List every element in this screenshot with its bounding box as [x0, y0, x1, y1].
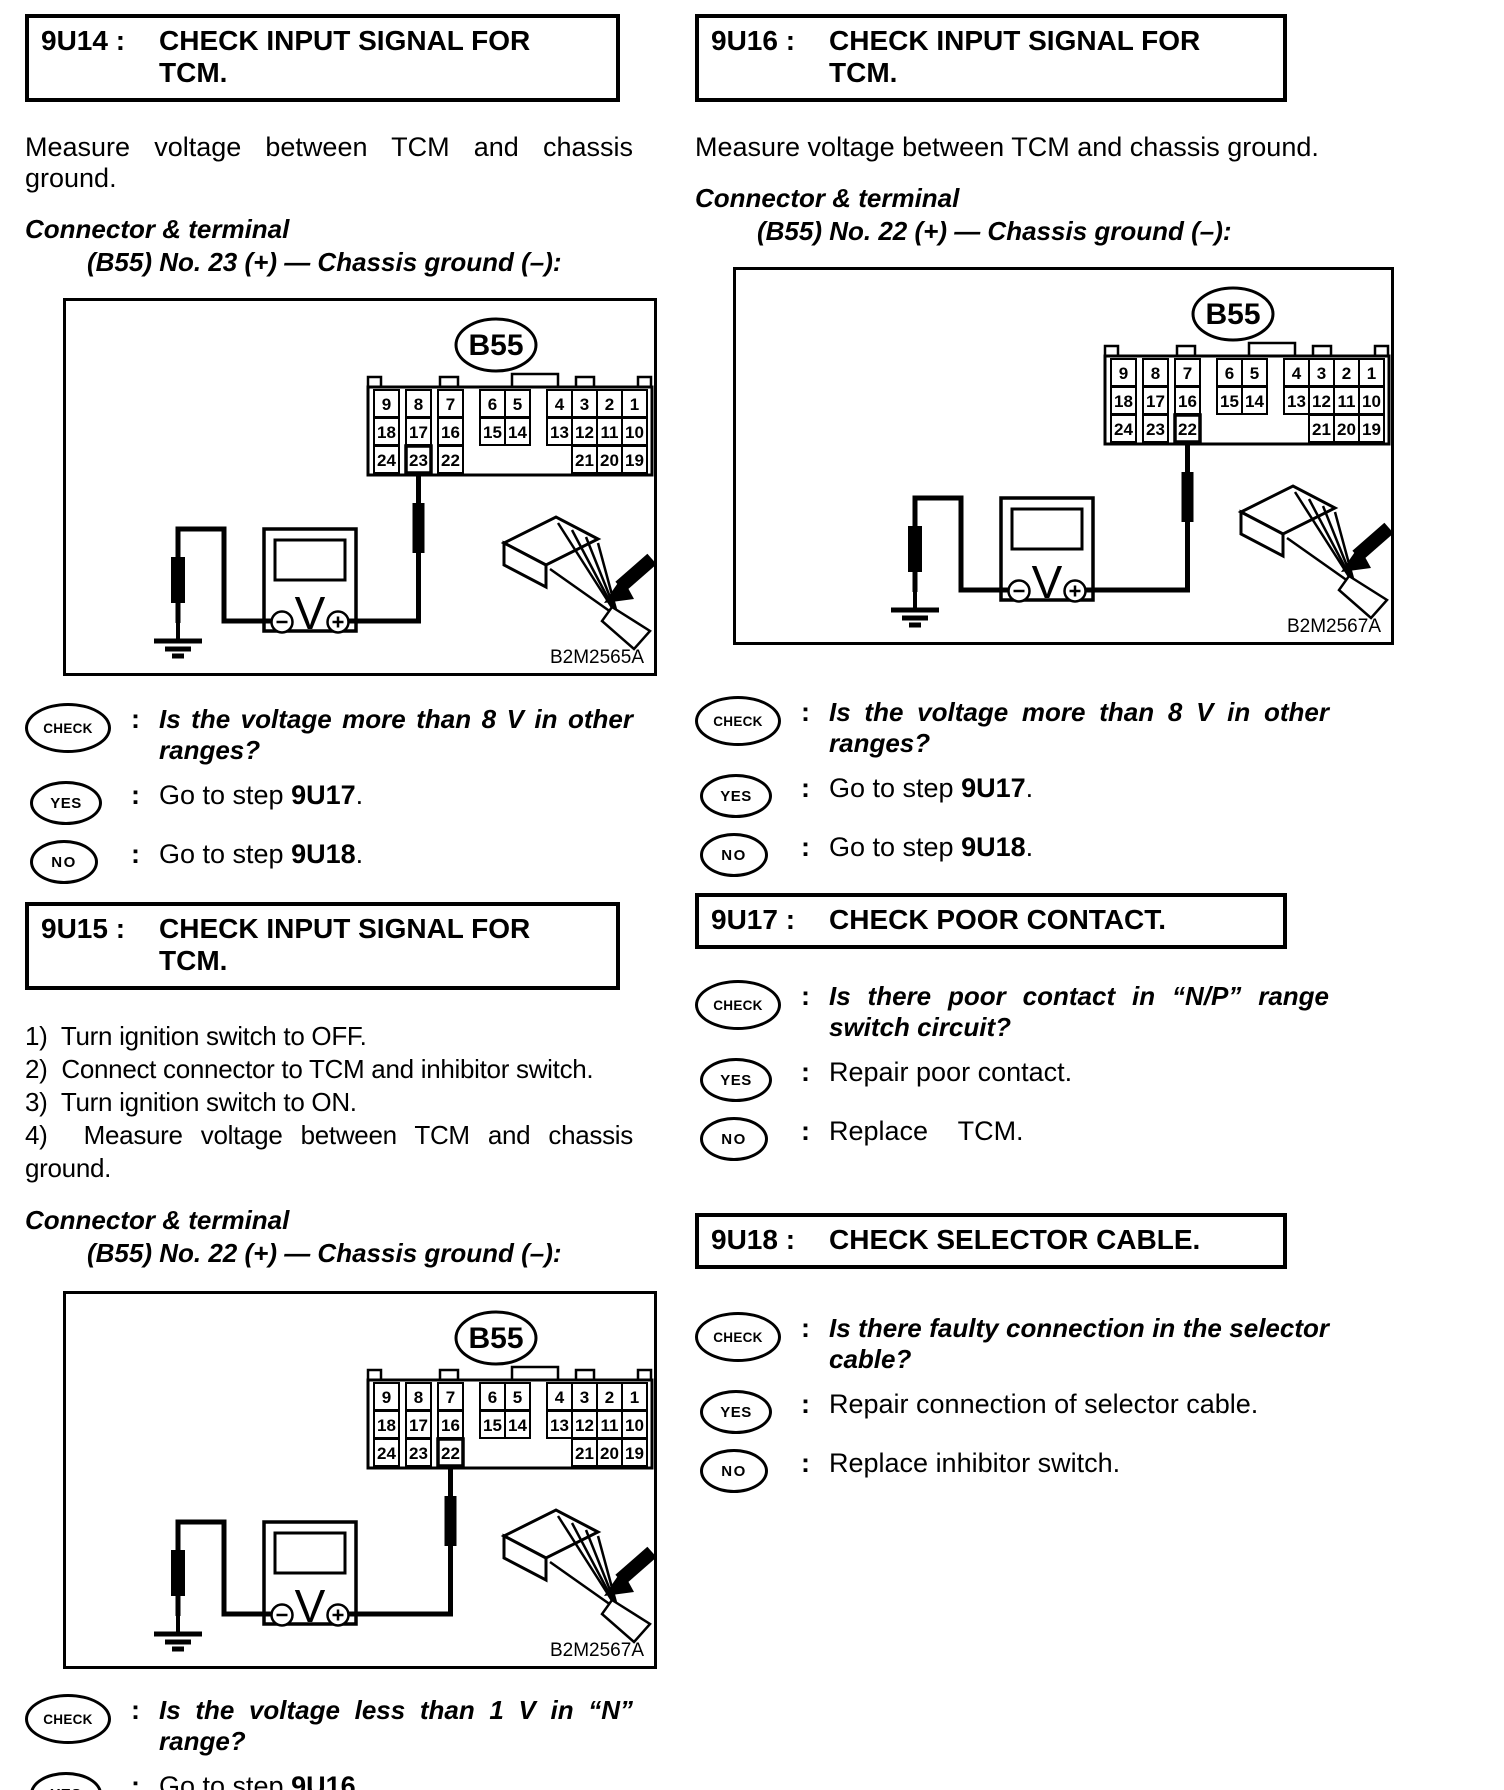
svg-text:21: 21 — [575, 451, 594, 470]
step-9u15-procedure: 1) Turn ignition switch to OFF.2) Connec… — [25, 1020, 633, 1185]
colon-separator: : — [801, 832, 829, 863]
figure-caption: B2M2567A — [550, 1640, 644, 1661]
badge-column: CHECK — [695, 979, 801, 1030]
svg-text:13: 13 — [1287, 392, 1306, 411]
step-id: 9U14 : — [41, 25, 159, 57]
left-column: 9U14 : CHECK INPUT SIGNAL FOR TCM. Measu… — [25, 0, 633, 1790]
arrow-icon — [604, 1552, 652, 1596]
figure-caption: B2M2567A — [1287, 616, 1381, 637]
svg-text:20: 20 — [600, 451, 619, 470]
connector-terminal-spec: (B55) No. 22 (+) — Chassis ground (–): — [87, 1238, 633, 1269]
yes-row: YES:Go to step 9U17. — [25, 778, 633, 825]
yes-row: YES:Go to step 9U16. — [25, 1769, 633, 1790]
badge-column: YES — [695, 771, 801, 818]
no-text: Replace inhibitor switch. — [829, 1448, 1120, 1479]
svg-text:19: 19 — [625, 1444, 644, 1463]
svg-text:2: 2 — [605, 395, 614, 414]
yes-badge: YES — [30, 781, 102, 825]
svg-text:3: 3 — [580, 1388, 589, 1407]
svg-text:B55: B55 — [468, 329, 523, 362]
connector-terminal-heading: Connector & terminal — [25, 1205, 633, 1236]
qa-9u14: CHECK:Is the voltage more than 8 V in ot… — [25, 702, 633, 884]
yes-text: Repair connection of selector cable. — [829, 1389, 1258, 1420]
step-9u14-header: 9U14 : CHECK INPUT SIGNAL FOR TCM. — [25, 14, 620, 102]
arrow-icon — [1341, 528, 1389, 572]
svg-text:15: 15 — [483, 423, 502, 442]
step-id: 9U16 : — [711, 25, 829, 57]
colon-separator: : — [801, 1313, 829, 1344]
svg-text:B55: B55 — [1205, 298, 1260, 331]
check-badge: CHECK — [695, 980, 781, 1030]
no-badge: NO — [30, 840, 98, 884]
svg-text:V: V — [295, 587, 326, 639]
figure-9u16: B559182481723716226155144133122121120110… — [733, 267, 1394, 645]
yes-badge: YES — [30, 1772, 102, 1790]
svg-text:13: 13 — [550, 423, 569, 442]
svg-text:V: V — [295, 1580, 326, 1632]
colon-separator: : — [801, 773, 829, 804]
svg-text:19: 19 — [1362, 420, 1381, 439]
step-9u18-header: 9U18 : CHECK SELECTOR CABLE. — [695, 1213, 1287, 1269]
badge-column: YES — [25, 778, 131, 825]
svg-text:5: 5 — [513, 395, 522, 414]
colon-separator: : — [131, 1771, 159, 1790]
svg-text:15: 15 — [1220, 392, 1239, 411]
step-9u14-intro: Measure voltage between TCM and chassis … — [25, 132, 633, 194]
badge-column: CHECK — [25, 702, 131, 753]
svg-text:10: 10 — [625, 423, 644, 442]
svg-text:21: 21 — [575, 1444, 594, 1463]
colon-separator: : — [801, 981, 829, 1012]
svg-text:15: 15 — [483, 1416, 502, 1435]
svg-text:21: 21 — [1312, 420, 1331, 439]
svg-text:11: 11 — [1338, 392, 1356, 411]
check-text: Is there faulty connection in the select… — [829, 1313, 1329, 1375]
step-title: CHECK SELECTOR CABLE. — [829, 1224, 1200, 1256]
svg-text:12: 12 — [575, 1416, 594, 1435]
badge-column: CHECK — [695, 695, 801, 746]
check-text: Is the voltage more than 8 V in other ra… — [829, 697, 1329, 759]
step-id: 9U15 : — [41, 913, 159, 945]
colon-separator: : — [801, 1448, 829, 1479]
badge-column: YES — [25, 1769, 131, 1790]
no-text: Go to step 9U18. — [159, 839, 363, 870]
step-title: CHECK INPUT SIGNAL FOR TCM. — [159, 913, 606, 977]
svg-text:18: 18 — [377, 423, 396, 442]
svg-text:5: 5 — [513, 1388, 522, 1407]
figure-9u14: B559182481723716226155144133122121120110… — [63, 298, 657, 676]
badge-column: NO — [695, 830, 801, 877]
yes-text: Go to step 9U17. — [829, 773, 1033, 804]
connector-pin-diagram: 918248172371622615514413312212112011019 — [1105, 343, 1389, 444]
svg-text:8: 8 — [1151, 364, 1160, 383]
connector-terminal-spec: (B55) No. 23 (+) — Chassis ground (–): — [87, 247, 633, 278]
badge-column: YES — [695, 1387, 801, 1434]
step-9u17-header: 9U17 : CHECK POOR CONTACT. — [695, 893, 1287, 949]
svg-text:8: 8 — [414, 395, 423, 414]
step-9u16-header: 9U16 : CHECK INPUT SIGNAL FOR TCM. — [695, 14, 1287, 102]
connector-pin-diagram: 918248172371622615514413312212112011019 — [368, 374, 652, 475]
check-badge: CHECK — [25, 1694, 111, 1744]
badge-column: YES — [695, 1055, 801, 1102]
colon-separator: : — [131, 780, 159, 811]
svg-text:10: 10 — [1362, 392, 1381, 411]
check-row: CHECK:Is there poor contact in “N/P” ran… — [695, 979, 1410, 1043]
no-row: NO:Replace TCM. — [695, 1114, 1410, 1161]
colon-separator: : — [801, 1389, 829, 1420]
yes-row: YES:Repair poor contact. — [695, 1055, 1410, 1102]
ground-icon — [154, 1616, 202, 1649]
check-text: Is the voltage more than 8 V in other ra… — [159, 704, 633, 766]
svg-text:10: 10 — [625, 1416, 644, 1435]
badge-column: CHECK — [695, 1311, 801, 1362]
svg-text:3: 3 — [1317, 364, 1326, 383]
yes-row: YES:Go to step 9U17. — [695, 771, 1410, 818]
svg-text:23: 23 — [409, 1444, 428, 1463]
qa-9u15: CHECK:Is the voltage less than 1 V in “N… — [25, 1693, 633, 1790]
svg-text:14: 14 — [1245, 392, 1264, 411]
svg-text:4: 4 — [1292, 364, 1302, 383]
svg-text:4: 4 — [555, 395, 565, 414]
ground-icon — [891, 592, 939, 625]
connector-id-label: B55 — [456, 1312, 536, 1364]
svg-text:22: 22 — [1178, 420, 1197, 439]
svg-text:2: 2 — [605, 1388, 614, 1407]
test-lead-wire — [1083, 442, 1194, 590]
yes-badge: YES — [700, 1390, 772, 1434]
svg-text:5: 5 — [1250, 364, 1259, 383]
check-row: CHECK:Is the voltage more than 8 V in ot… — [25, 702, 633, 766]
no-badge: NO — [700, 1449, 768, 1493]
yes-badge: YES — [700, 774, 772, 818]
svg-text:4: 4 — [555, 1388, 565, 1407]
step-title: CHECK POOR CONTACT. — [829, 904, 1166, 936]
svg-text:7: 7 — [1183, 364, 1192, 383]
procedure-step: 3) Turn ignition switch to ON. — [25, 1086, 633, 1119]
svg-text:19: 19 — [625, 451, 644, 470]
colon-separator: : — [801, 1057, 829, 1088]
svg-text:18: 18 — [1114, 392, 1133, 411]
connector-terminal-spec: (B55) No. 22 (+) — Chassis ground (–): — [757, 216, 1410, 247]
svg-text:17: 17 — [1146, 392, 1165, 411]
qa-9u16: CHECK:Is the voltage more than 8 V in ot… — [695, 695, 1410, 877]
no-text: Replace TCM. — [829, 1116, 1024, 1147]
svg-text:20: 20 — [600, 1444, 619, 1463]
svg-text:7: 7 — [446, 1388, 455, 1407]
step-id: 9U17 : — [711, 904, 829, 936]
connector-terminal-heading: Connector & terminal — [695, 183, 1410, 214]
qa-9u18: CHECK:Is there faulty connection in the … — [695, 1311, 1410, 1493]
svg-text:6: 6 — [1225, 364, 1234, 383]
svg-text:6: 6 — [488, 1388, 497, 1407]
figure-canvas: B559182481723716226155144133122121120110… — [66, 301, 654, 673]
yes-text: Go to step 9U17. — [159, 780, 363, 811]
check-text: Is the voltage less than 1 V in “N” rang… — [159, 1695, 633, 1757]
svg-text:12: 12 — [1312, 392, 1331, 411]
svg-text:9: 9 — [382, 395, 391, 414]
check-badge: CHECK — [695, 1312, 781, 1362]
test-lead-wire — [346, 473, 425, 621]
svg-text:8: 8 — [414, 1388, 423, 1407]
svg-text:22: 22 — [441, 451, 460, 470]
yes-text: Go to step 9U16. — [159, 1771, 363, 1790]
svg-text:16: 16 — [441, 423, 460, 442]
figure-caption: B2M2565A — [550, 647, 644, 668]
svg-text:14: 14 — [508, 423, 527, 442]
svg-text:22: 22 — [441, 1444, 460, 1463]
procedure-step: 2) Connect connector to TCM and inhibito… — [25, 1053, 633, 1086]
step-9u16-intro: Measure voltage between TCM and chassis … — [695, 132, 1410, 163]
svg-text:17: 17 — [409, 1416, 428, 1435]
figure-9u15: B559182481723716226155144133122121120110… — [63, 1291, 657, 1669]
no-row: NO:Go to step 9U18. — [695, 830, 1410, 877]
procedure-step: 4) Measure voltage between TCM and chass… — [25, 1119, 633, 1185]
svg-text:2: 2 — [1342, 364, 1351, 383]
svg-text:24: 24 — [377, 1444, 396, 1463]
svg-text:24: 24 — [1114, 420, 1133, 439]
figure-canvas: B559182481723716226155144133122121120110… — [736, 270, 1391, 642]
connector-id-label: B55 — [456, 319, 536, 371]
svg-text:3: 3 — [580, 395, 589, 414]
no-row: NO:Replace inhibitor switch. — [695, 1446, 1410, 1493]
colon-separator: : — [131, 839, 159, 870]
figure-canvas: B559182481723716226155144133122121120110… — [66, 1294, 654, 1666]
check-row: CHECK:Is the voltage less than 1 V in “N… — [25, 1693, 633, 1757]
svg-text:24: 24 — [377, 451, 396, 470]
qa-9u17: CHECK:Is there poor contact in “N/P” ran… — [695, 979, 1410, 1161]
check-badge: CHECK — [25, 703, 111, 753]
colon-separator: : — [801, 697, 829, 728]
svg-text:1: 1 — [1367, 364, 1376, 383]
svg-text:7: 7 — [446, 395, 455, 414]
yes-text: Repair poor contact. — [829, 1057, 1072, 1088]
svg-text:13: 13 — [550, 1416, 569, 1435]
right-column: 9U16 : CHECK INPUT SIGNAL FOR TCM. Measu… — [695, 0, 1410, 1505]
colon-separator: : — [131, 704, 159, 735]
check-row: CHECK:Is the voltage more than 8 V in ot… — [695, 695, 1410, 759]
badge-column: NO — [695, 1114, 801, 1161]
step-title: CHECK INPUT SIGNAL FOR TCM. — [829, 25, 1273, 89]
check-badge: CHECK — [695, 696, 781, 746]
svg-text:1: 1 — [630, 1388, 639, 1407]
colon-separator: : — [801, 1116, 829, 1147]
ground-lead — [171, 1522, 274, 1616]
step-title: CHECK INPUT SIGNAL FOR TCM. — [159, 25, 606, 89]
svg-text:B55: B55 — [468, 1322, 523, 1355]
svg-text:18: 18 — [377, 1416, 396, 1435]
svg-text:V: V — [1032, 556, 1063, 608]
connector-id-label: B55 — [1193, 288, 1273, 340]
svg-text:16: 16 — [441, 1416, 460, 1435]
svg-text:1: 1 — [630, 395, 639, 414]
svg-text:20: 20 — [1337, 420, 1356, 439]
colon-separator: : — [131, 1695, 159, 1726]
no-badge: NO — [700, 833, 768, 877]
svg-text:9: 9 — [382, 1388, 391, 1407]
step-9u15-header: 9U15 : CHECK INPUT SIGNAL FOR TCM. — [25, 902, 620, 990]
no-badge: NO — [700, 1117, 768, 1161]
ground-icon — [154, 623, 202, 656]
no-text: Go to step 9U18. — [829, 832, 1033, 863]
check-row: CHECK:Is there faulty connection in the … — [695, 1311, 1410, 1375]
svg-text:9: 9 — [1119, 364, 1128, 383]
svg-text:14: 14 — [508, 1416, 527, 1435]
check-text: Is there poor contact in “N/P” range swi… — [829, 981, 1329, 1043]
arrow-icon — [604, 559, 652, 603]
test-lead-wire — [346, 1466, 457, 1614]
ground-lead — [908, 498, 1011, 592]
svg-text:6: 6 — [488, 395, 497, 414]
step-id: 9U18 : — [711, 1224, 829, 1256]
yes-row: YES:Repair connection of selector cable. — [695, 1387, 1410, 1434]
manual-page: 9U14 : CHECK INPUT SIGNAL FOR TCM. Measu… — [0, 0, 1504, 1790]
yes-badge: YES — [700, 1058, 772, 1102]
badge-column: NO — [25, 837, 131, 884]
connector-terminal-heading: Connector & terminal — [25, 214, 633, 245]
svg-text:17: 17 — [409, 423, 428, 442]
badge-column: NO — [695, 1446, 801, 1493]
svg-text:11: 11 — [601, 1416, 619, 1435]
svg-text:11: 11 — [601, 423, 619, 442]
svg-text:12: 12 — [575, 423, 594, 442]
procedure-step: 1) Turn ignition switch to OFF. — [25, 1020, 633, 1053]
svg-text:23: 23 — [409, 451, 428, 470]
no-row: NO:Go to step 9U18. — [25, 837, 633, 884]
connector-pin-diagram: 918248172371622615514413312212112011019 — [368, 1367, 652, 1468]
svg-text:23: 23 — [1146, 420, 1165, 439]
ground-lead — [171, 529, 274, 623]
svg-text:16: 16 — [1178, 392, 1197, 411]
badge-column: CHECK — [25, 1693, 131, 1744]
